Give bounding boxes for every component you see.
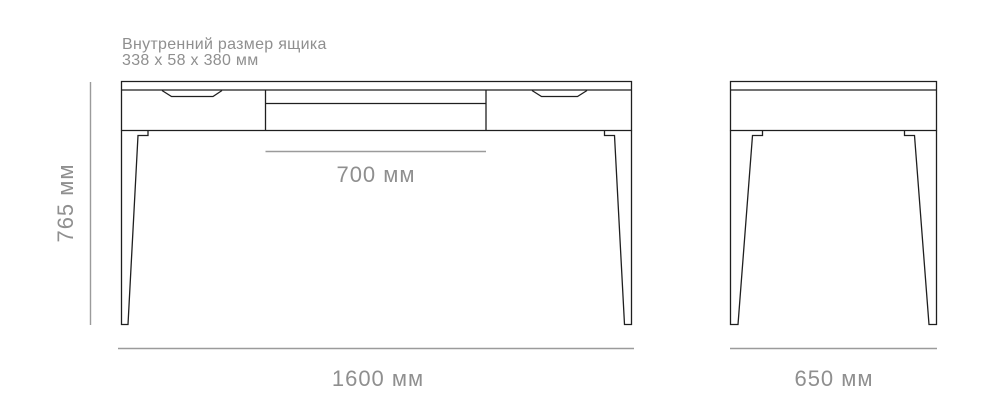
drawer-width-dimension-label: 700 мм xyxy=(336,162,415,188)
front-left-leg xyxy=(122,131,149,325)
height-dimension-label: 765 мм xyxy=(53,163,79,242)
furniture-dimension-drawing: Внутренний размер ящика 338 x 58 x 380 м… xyxy=(0,0,1000,416)
side-body-outline xyxy=(731,82,937,131)
dimension-lines xyxy=(91,82,938,349)
drawer-inner-size-title: Внутренний размер ящика xyxy=(122,37,327,53)
front-body-outline xyxy=(122,82,632,131)
width-dimension-label: 1600 мм xyxy=(332,366,424,392)
front-right-leg xyxy=(605,131,632,325)
side-left-leg xyxy=(731,131,763,325)
front-view xyxy=(122,82,632,325)
drawer-inner-size-value: 338 x 58 x 380 мм xyxy=(122,53,327,69)
left-drawer-handle-notch xyxy=(162,91,222,97)
depth-dimension-label: 650 мм xyxy=(794,366,873,392)
right-drawer-handle-notch xyxy=(532,91,587,97)
side-view xyxy=(731,82,937,325)
side-right-leg xyxy=(905,131,937,325)
drawer-inner-size-note: Внутренний размер ящика 338 x 58 x 380 м… xyxy=(122,37,327,69)
